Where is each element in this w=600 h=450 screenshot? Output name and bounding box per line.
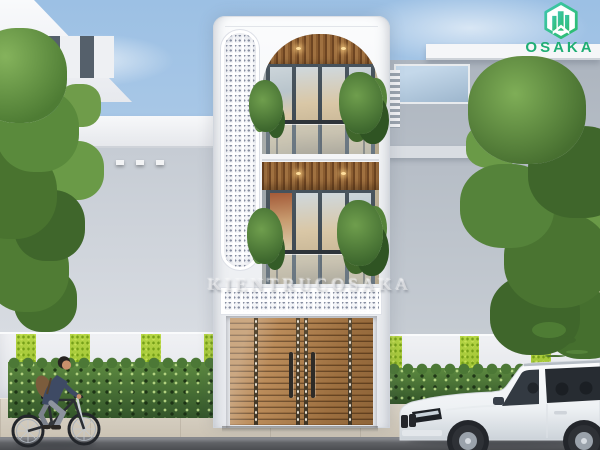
hexagon-skyline-logo-icon xyxy=(542,2,580,39)
wood-slat-gate xyxy=(226,316,377,428)
street-tree-right xyxy=(468,56,586,164)
downlight xyxy=(296,47,301,50)
architectural-render: KIENTRUCOSAKA xyxy=(0,0,600,450)
balcony-plant xyxy=(337,200,383,266)
right-house-window xyxy=(394,64,470,104)
watermark-text: KIENTRUCOSAKA xyxy=(150,268,470,302)
parapet-groove xyxy=(225,26,378,27)
white-suv xyxy=(396,348,600,450)
balcony-plant xyxy=(339,72,383,134)
cyclist xyxy=(2,336,116,450)
wood-slat-ceiling xyxy=(262,162,379,190)
downlight-fixture xyxy=(156,160,164,165)
downlight xyxy=(341,172,346,175)
downlight xyxy=(296,172,301,175)
wood-slat-ceiling xyxy=(262,34,379,68)
main-townhouse xyxy=(213,16,390,428)
balcony-plant xyxy=(247,208,283,264)
gate-ground-shadow xyxy=(222,426,378,432)
logo: OSAKA xyxy=(520,2,600,56)
gate-bar xyxy=(296,318,300,425)
gate-bar xyxy=(254,318,258,425)
logo-text: OSAKA xyxy=(520,39,600,56)
gate-bar xyxy=(304,318,308,425)
left-house-wall xyxy=(0,148,215,336)
gate-bar xyxy=(348,318,352,425)
downlight-fixture xyxy=(136,160,144,165)
gate-handle xyxy=(311,352,315,398)
right-house-beige-wall xyxy=(554,220,600,338)
downlight xyxy=(341,47,346,50)
hanging-vine xyxy=(532,322,566,338)
downlight-fixture xyxy=(116,160,124,165)
balcony-plant xyxy=(249,80,283,132)
floor-divider xyxy=(262,159,379,161)
gate-handle xyxy=(289,352,293,398)
